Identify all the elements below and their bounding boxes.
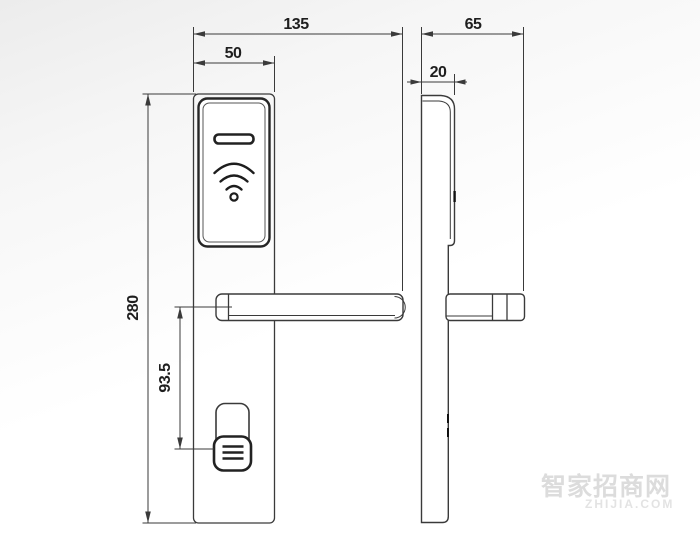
dim-front-plate-width: 50 [194,45,275,92]
dim-side-reader-thickness: 20 [407,64,467,95]
handle-front-bar [216,294,403,321]
technical-drawing-svg: 135 50 65 [0,0,700,542]
card-reader [199,99,270,247]
dim-label-280: 280 [125,295,142,321]
card-slot [215,135,254,144]
dim-label-65: 65 [465,16,482,33]
drawing-canvas: 135 50 65 [0,0,700,542]
wifi-dot [230,193,237,200]
dim-label-93-5: 93.5 [157,363,174,393]
dim-plate-height: 280 [125,94,196,523]
dim-label-20: 20 [430,64,447,81]
side-view [422,96,525,523]
handle-side [446,294,525,321]
handle-front [216,294,405,321]
card-reader-outer [199,99,270,247]
privacy-knob [214,404,251,471]
dim-label-135: 135 [283,16,309,33]
front-view [194,94,406,523]
handle-side-bar [446,294,525,321]
watermark: 智家招商网 ZHIJIA.COM [541,475,699,510]
dimensions-layer: 135 50 65 [125,16,524,523]
dim-label-50: 50 [225,45,242,62]
